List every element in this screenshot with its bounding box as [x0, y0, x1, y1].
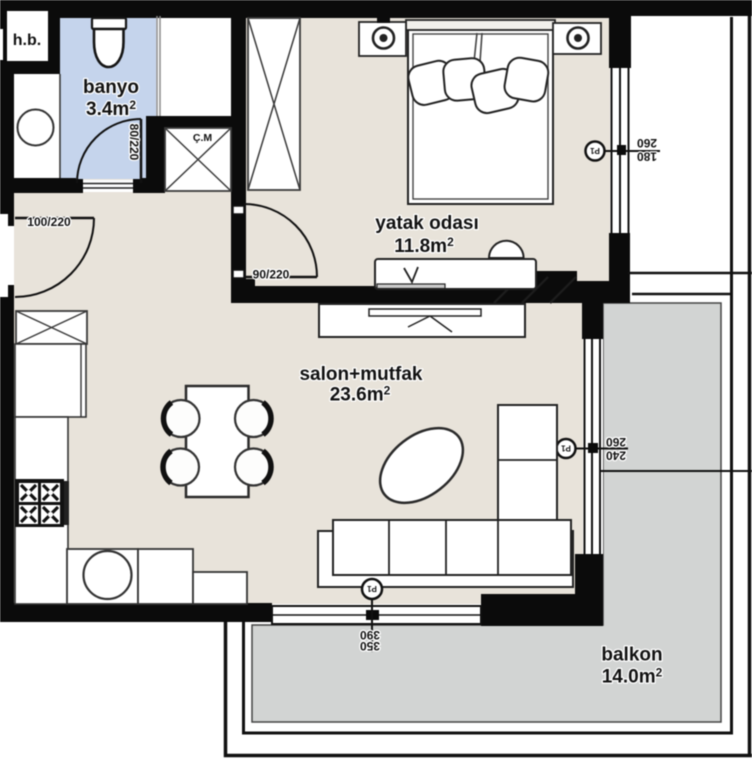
- svg-text:11.8m2: 11.8m2: [394, 235, 454, 257]
- svg-text:banyo: banyo: [83, 77, 139, 98]
- svg-text:P1: P1: [367, 584, 377, 593]
- svg-text:90/220: 90/220: [253, 268, 290, 282]
- svg-text:yatak odası: yatak odası: [375, 213, 479, 234]
- svg-text:salon+mutfak: salon+mutfak: [299, 364, 422, 385]
- svg-text:23.6m2: 23.6m2: [330, 384, 391, 406]
- svg-text:P1: P1: [561, 444, 571, 453]
- svg-text:P1: P1: [590, 146, 600, 155]
- svg-text:350: 350: [360, 639, 380, 653]
- svg-text:balkon: balkon: [601, 645, 662, 666]
- svg-text:h.b.: h.b.: [13, 32, 41, 49]
- svg-text:260: 260: [606, 435, 626, 449]
- svg-text:180: 180: [637, 150, 657, 164]
- svg-text:Ç.M: Ç.M: [193, 132, 213, 144]
- svg-text:240: 240: [606, 449, 626, 463]
- svg-text:260: 260: [637, 136, 657, 150]
- svg-text:3.4m2: 3.4m2: [86, 98, 136, 120]
- svg-text:14.0m2: 14.0m2: [602, 666, 663, 688]
- svg-text:100/220: 100/220: [27, 215, 71, 229]
- svg-text:80/220: 80/220: [127, 124, 141, 161]
